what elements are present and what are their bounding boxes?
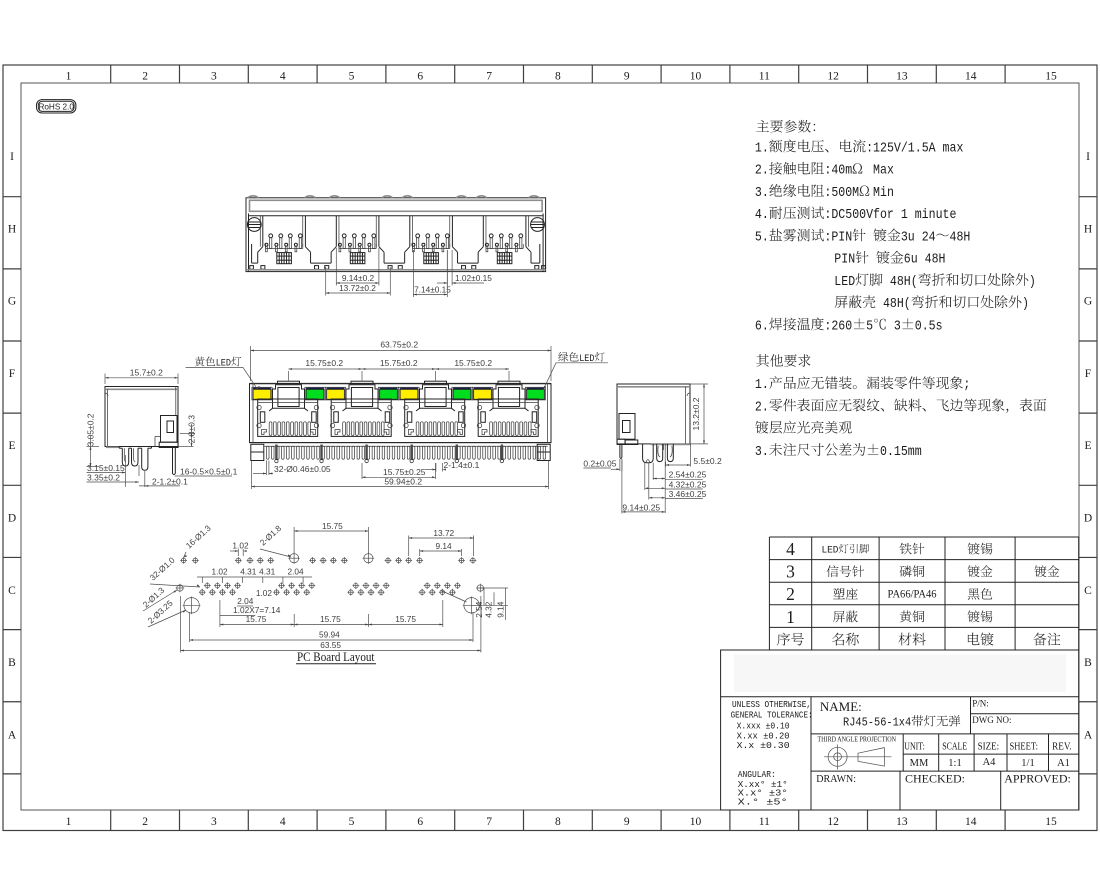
svg-text:RoHS 2.0: RoHS 2.0 [38,103,74,112]
svg-text:B: B [1084,657,1092,669]
svg-text:48H: 48H [950,230,971,245]
svg-text:4.31: 4.31 [240,567,257,577]
svg-text:THIRD ANGLE PROJECTION: THIRD ANGLE PROJECTION [817,735,896,744]
svg-text:C: C [1084,585,1092,597]
svg-text:D: D [8,513,16,525]
svg-text:15.75±0.2: 15.75±0.2 [305,358,343,368]
svg-text:9.14±0.2: 9.14±0.2 [342,273,375,283]
svg-text:7: 7 [486,816,492,828]
svg-text:2.: 2. [755,164,769,179]
svg-text:A: A [8,729,17,741]
svg-text:1: 1 [66,816,72,828]
svg-text:A4: A4 [983,757,997,768]
svg-text:0.5s: 0.5s [915,319,943,334]
svg-text:13: 13 [896,71,908,83]
svg-text:5.5±0.2: 5.5±0.2 [693,456,722,466]
svg-text:13.2±0.2: 13.2±0.2 [691,397,701,430]
svg-text:3: 3 [786,562,795,582]
svg-text:2.04: 2.04 [288,567,305,577]
svg-text:1: 1 [66,71,72,83]
svg-text:3: 3 [211,816,217,828]
svg-text:12: 12 [827,816,839,828]
svg-text:48H(: 48H( [883,297,911,312]
svg-text:1.: 1. [755,378,769,393]
svg-text:9: 9 [624,816,630,828]
svg-text:SHEET:: SHEET: [1010,742,1039,753]
svg-text:SIZE:: SIZE: [978,742,1000,753]
svg-text:48H(: 48H( [890,275,918,290]
svg-text:11: 11 [759,816,770,828]
svg-text:C: C [8,585,16,597]
svg-text:9.14±0.25: 9.14±0.25 [622,502,660,512]
svg-text:MM: MM [910,758,929,769]
svg-text:15.7±0.2: 15.7±0.2 [130,367,163,377]
svg-text:15.75: 15.75 [320,614,341,624]
svg-text:SCALE: SCALE [942,742,967,753]
svg-text:G: G [8,296,16,308]
svg-text:P/N:: P/N: [972,699,989,709]
svg-text:2-1.2±0.1: 2-1.2±0.1 [152,476,188,486]
svg-text:5: 5 [349,71,355,83]
svg-text:1.: 1. [755,141,769,156]
svg-text:16-0.5×0.5±0.1: 16-0.5×0.5±0.1 [180,467,238,477]
svg-text:1.02: 1.02 [212,567,229,577]
svg-text:3.: 3. [755,186,769,201]
svg-text:2.: 2. [755,400,769,415]
svg-text:X.° ±5°: X.° ±5° [738,797,788,808]
svg-text:E: E [8,440,15,452]
svg-text:15.75: 15.75 [322,521,343,531]
svg-text:13.72±0.2: 13.72±0.2 [339,283,376,293]
svg-text:15.75±0.2: 15.75±0.2 [454,358,492,368]
svg-text:2.54±0.25: 2.54±0.25 [669,470,707,480]
svg-text:5.: 5. [755,230,769,245]
svg-text:13.72: 13.72 [433,528,454,538]
svg-text:14: 14 [965,816,977,828]
svg-text:2: 2 [142,816,148,828]
svg-text:15.75±0.2: 15.75±0.2 [380,358,418,368]
svg-text:3.05±0.2: 3.05±0.2 [86,413,96,446]
svg-text:F: F [1085,368,1091,380]
svg-text:6.: 6. [755,319,769,334]
svg-text:0.2±0.05: 0.2±0.05 [583,458,616,468]
svg-text:APPROVED:: APPROVED: [1004,772,1071,786]
svg-text:1.02±0.15: 1.02±0.15 [455,273,492,283]
svg-text:1/1: 1/1 [1021,758,1034,769]
svg-text:5: 5 [866,319,873,334]
svg-text:9: 9 [624,71,630,83]
svg-text:DRAWN:: DRAWN: [816,774,856,785]
svg-text:H: H [8,223,16,235]
svg-text:F: F [9,368,15,380]
svg-text:4: 4 [280,816,286,828]
svg-text:A: A [1084,729,1093,741]
svg-text:G: G [1084,296,1092,308]
svg-text:4: 4 [786,539,795,559]
svg-text:CHECKED:: CHECKED: [905,772,965,786]
svg-text:9.14: 9.14 [495,601,505,618]
svg-text:PC Board Layout: PC Board Layout [297,649,375,664]
svg-text:GENERAL TOLERANCE:: GENERAL TOLERANCE: [731,709,813,720]
svg-text:6u 48H: 6u 48H [904,253,946,268]
svg-text:I: I [1086,151,1090,163]
svg-text:RJ45-56-1x4: RJ45-56-1x4 [843,716,911,730]
svg-text:5: 5 [349,816,355,828]
svg-text:3u 24: 3u 24 [901,230,936,245]
svg-text:NAME:: NAME: [820,699,862,714]
svg-text:59.94: 59.94 [319,629,340,639]
svg-text:E: E [1084,440,1091,452]
svg-text:REV.: REV. [1052,742,1072,753]
svg-text:15.75: 15.75 [395,614,416,624]
svg-text:15: 15 [1045,71,1057,83]
svg-text:6: 6 [417,816,423,828]
svg-text::125V/1.5A max: :125V/1.5A max [866,141,963,156]
svg-text:13: 13 [896,816,908,828]
svg-text:1:1: 1:1 [948,758,961,769]
svg-text:32-Ø0.46±0.05: 32-Ø0.46±0.05 [274,464,331,474]
svg-text:63.75±0.2: 63.75±0.2 [380,340,418,350]
svg-text::500M: :500M [824,186,859,201]
svg-text:): ) [1029,275,1036,290]
svg-text:7.14±0.15: 7.14±0.15 [414,285,451,295]
svg-text:3.35±0.2: 3.35±0.2 [87,472,120,482]
svg-text:12: 12 [827,71,839,83]
svg-text:2.54: 2.54 [474,601,484,618]
svg-text:59.94±0.2: 59.94±0.2 [384,476,422,486]
svg-text:DWG NO:: DWG NO: [972,715,1011,725]
svg-text:11: 11 [759,71,770,83]
svg-text:2: 2 [142,71,148,83]
svg-text:A1: A1 [1057,758,1070,769]
svg-text:4: 4 [280,71,286,83]
svg-text:15.75: 15.75 [246,614,267,624]
svg-text:3.15±0.15: 3.15±0.15 [87,463,125,473]
svg-text:1.02: 1.02 [256,588,273,598]
svg-text:D: D [1084,513,1092,525]
svg-text:3.46±0.25: 3.46±0.25 [669,489,707,499]
svg-text:0.15mm: 0.15mm [880,445,922,460]
svg-text:9.14: 9.14 [436,541,453,551]
svg-text:Min: Min [873,186,894,201]
svg-text:3: 3 [211,71,217,83]
svg-text:7: 7 [486,71,492,83]
svg-text:2-1.4±0.1: 2-1.4±0.1 [444,460,480,470]
svg-text:3: 3 [894,319,901,334]
svg-text:UNIT:: UNIT: [904,742,925,753]
svg-text:8: 8 [555,71,561,83]
svg-text:4.32±0.25: 4.32±0.25 [669,479,707,489]
svg-text:4.: 4. [755,208,769,223]
svg-text:PA66/PA46: PA66/PA46 [888,587,937,601]
svg-text:15: 15 [1045,816,1057,828]
svg-text:I: I [10,151,14,163]
svg-text:Max: Max [873,164,894,179]
svg-text:H: H [1084,223,1092,235]
svg-text:1: 1 [786,607,795,627]
svg-text:10: 10 [690,71,702,83]
svg-text:;: ; [963,378,970,393]
svg-text:PIN: PIN [834,253,855,268]
svg-text::40m: :40m [824,164,852,179]
svg-text::DC500Vfor 1 minute: :DC500Vfor 1 minute [824,208,956,223]
svg-text:10: 10 [690,816,702,828]
svg-text:6: 6 [417,71,423,83]
svg-text:B: B [8,657,16,669]
svg-text:2: 2 [786,584,795,604]
svg-text:4.31: 4.31 [259,567,276,577]
svg-text:4.32: 4.32 [484,601,494,618]
svg-text:X.x ±0.30: X.x ±0.30 [737,740,790,751]
svg-text:1.02: 1.02 [232,541,249,551]
svg-text::260: :260 [824,319,852,334]
svg-text:14: 14 [965,71,977,83]
svg-text:LED: LED [821,546,838,557]
svg-text:8: 8 [555,816,561,828]
svg-text:2.8±0.3: 2.8±0.3 [187,415,197,444]
svg-text:LED: LED [834,275,855,290]
svg-text:3.: 3. [755,445,769,460]
svg-text::PIN: :PIN [824,230,852,245]
svg-text:): ) [1022,297,1029,312]
